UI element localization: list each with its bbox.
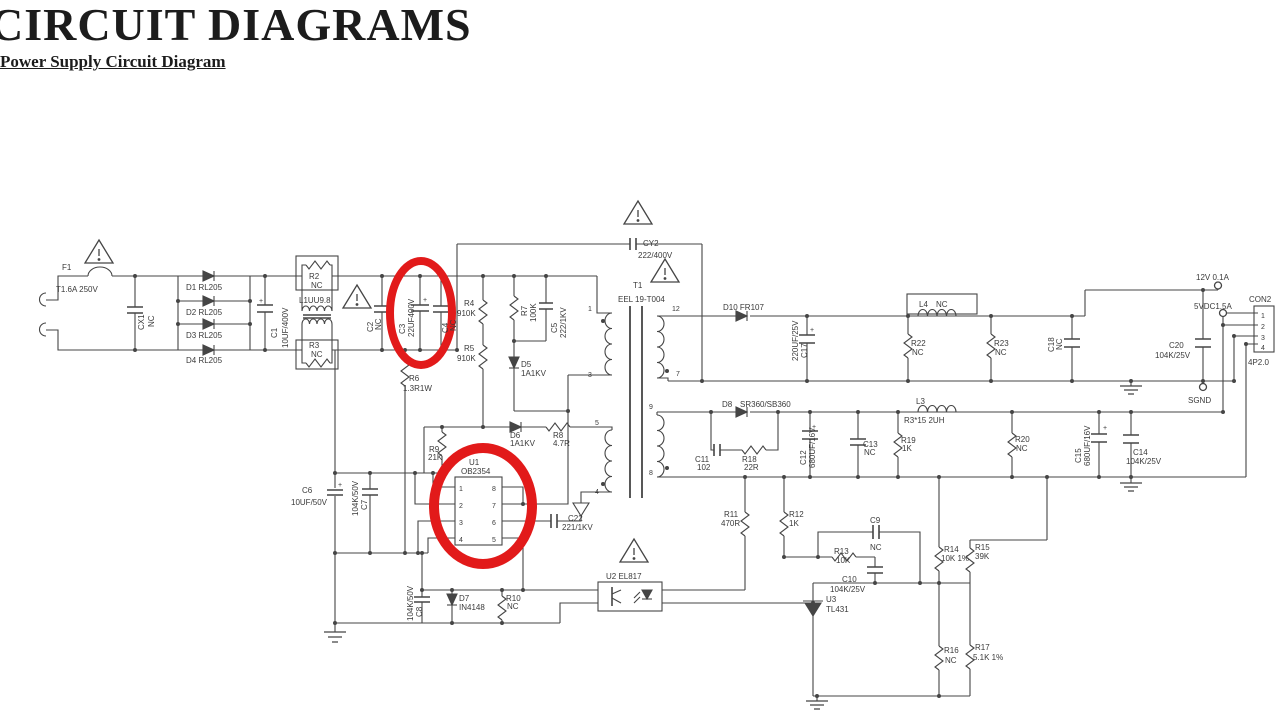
- circuit-wiring: [40, 244, 1275, 701]
- page: CIRCUIT DIAGRAMS Power Supply Circuit Di…: [0, 0, 1280, 720]
- diode-d2: [203, 296, 214, 306]
- component-label: C20: [1169, 341, 1184, 350]
- component-label: 1K: [902, 444, 912, 453]
- component-label: C14: [1133, 448, 1148, 457]
- resistor-r18: [742, 446, 766, 454]
- component-label: R11: [724, 510, 739, 519]
- component-label: R22: [911, 339, 926, 348]
- testpoint-sgnd: [1200, 384, 1207, 391]
- component-label: 100K: [529, 303, 538, 322]
- component-label: 4: [1261, 345, 1265, 352]
- choke-l1-winding-bottom: [302, 319, 332, 324]
- resistor-r8: [546, 423, 570, 431]
- ground-symbol: [1120, 483, 1142, 491]
- component-label: NC: [870, 543, 882, 552]
- component-label: U1: [469, 458, 480, 467]
- diode-d3: [203, 319, 214, 329]
- resistor-r16: [935, 646, 943, 670]
- component-label: 1: [459, 486, 463, 493]
- component-label: 3: [588, 372, 592, 379]
- transformer-secondary-winding-bottom: [657, 415, 664, 477]
- component-label: D2 RL205: [186, 308, 223, 317]
- component-label: 12: [672, 306, 680, 313]
- component-label: C5: [550, 322, 559, 333]
- component-label: NC: [912, 348, 924, 357]
- component-label: 10UF/50V: [291, 498, 328, 507]
- component-label: 2: [459, 503, 463, 510]
- component-label: NC: [936, 300, 948, 309]
- component-label: D1 RL205: [186, 283, 223, 292]
- component-label: R2: [309, 272, 320, 281]
- component-label: 4: [595, 489, 599, 496]
- component-label: SGND: [1188, 396, 1211, 405]
- component-label: 102: [697, 463, 711, 472]
- component-label: NC: [1055, 338, 1064, 350]
- component-label: 4P2.0: [1248, 358, 1269, 367]
- ac-plug-icon: [40, 293, 47, 336]
- component-label: D5: [521, 360, 532, 369]
- resistor-r2: [306, 261, 330, 269]
- diode-d4: [203, 345, 214, 355]
- transformer-core: [630, 306, 642, 498]
- component-label: NC: [1016, 444, 1028, 453]
- component-label: 104K/25V: [830, 585, 866, 594]
- power-supply-schematic: F1T1.6A 250VCX1NCD1 RL205D2 RL205D3 RL20…: [0, 0, 1280, 720]
- page-title: CIRCUIT DIAGRAMS: [0, 0, 890, 51]
- component-label: CY2: [643, 239, 659, 248]
- ground-symbol: [324, 632, 346, 642]
- component-label: C9: [870, 516, 881, 525]
- component-label: T1: [633, 281, 643, 290]
- junction-dots: [133, 274, 1248, 698]
- component-label: U3: [826, 595, 837, 604]
- component-label: 9: [649, 404, 653, 411]
- component-label: R20: [1015, 435, 1030, 444]
- component-label: 680UF/16V: [808, 427, 817, 468]
- page-subtitle: Power Supply Circuit Diagram: [0, 52, 600, 72]
- optocoupler-u2-internals: [612, 587, 652, 606]
- component-label: C17: [800, 343, 809, 358]
- component-label: 4: [459, 537, 463, 544]
- resistor-r10: [498, 596, 506, 620]
- component-label: R5: [464, 344, 475, 353]
- optocoupler-u2-box: [598, 582, 662, 611]
- component-label: 221/1KV: [562, 523, 593, 532]
- diode-d1: [203, 271, 214, 281]
- component-label: R15: [975, 543, 990, 552]
- resistor-r12: [780, 512, 788, 536]
- component-label: 222/400V: [638, 251, 673, 260]
- component-label: R3*15 2UH: [904, 416, 945, 425]
- warning-triangle-icon: [624, 201, 652, 224]
- component-label: C12: [799, 450, 808, 465]
- component-label: +: [259, 298, 263, 305]
- component-label: 8: [492, 486, 496, 493]
- transformer-primary-winding: [605, 313, 612, 375]
- component-label: +: [423, 297, 427, 304]
- component-label: C8: [415, 606, 424, 617]
- component-label: OB2354: [461, 467, 491, 476]
- component-label: L4: [919, 300, 928, 309]
- component-label: TL431: [826, 605, 849, 614]
- component-label: +: [338, 482, 342, 489]
- component-label: L3: [916, 397, 925, 406]
- warning-triangle-icon: [620, 539, 648, 562]
- component-label: 4.7R: [553, 439, 570, 448]
- warning-triangle-icon: [343, 285, 371, 308]
- component-label: 10UF/400V: [281, 307, 290, 348]
- component-label: C10: [842, 575, 857, 584]
- component-label: CON2: [1249, 295, 1272, 304]
- component-label: 104K/25V: [1126, 457, 1162, 466]
- component-label: 5: [595, 420, 599, 427]
- component-label: R12: [789, 510, 804, 519]
- warning-triangle-icon: [85, 240, 113, 263]
- component-label: 8: [649, 470, 653, 477]
- component-label: 39K: [975, 552, 990, 561]
- component-label: 220UF/25V: [791, 320, 800, 361]
- diode-d10: [736, 311, 747, 321]
- component-label: R14: [944, 545, 959, 554]
- component-label: NC: [311, 281, 323, 290]
- component-label: 21K: [428, 453, 443, 462]
- component-label: C3: [398, 323, 407, 334]
- component-label: 104K/25V: [1155, 351, 1191, 360]
- annotations: [85, 201, 1227, 709]
- component-label: R7: [520, 305, 529, 316]
- component-label: NC: [507, 602, 519, 611]
- component-label: 12V 0.1A: [1196, 273, 1230, 282]
- component-label: NC: [311, 350, 323, 359]
- diode-d7: [447, 594, 457, 605]
- component-label: 1: [1261, 313, 1265, 320]
- component-label: NC: [864, 448, 876, 457]
- component-label: 104K/50V: [351, 480, 360, 516]
- highlight-ellipse-2: [434, 448, 532, 564]
- component-label: R3: [309, 341, 320, 350]
- component-label: 3: [1261, 335, 1265, 342]
- capacitor-plates: [127, 238, 1211, 602]
- component-label: T1.6A 250V: [56, 285, 98, 294]
- component-label: F1: [62, 263, 72, 272]
- resistor-r6: [401, 362, 409, 386]
- component-label: 6: [492, 520, 496, 527]
- component-label: 22UF400V: [407, 298, 416, 337]
- component-label: 1K: [789, 519, 799, 528]
- component-label: 1.3R1W: [403, 384, 432, 393]
- component-label: EEL 19-T004: [618, 295, 665, 304]
- choke-l1-winding-top: [302, 306, 332, 311]
- component-label: +: [810, 327, 814, 334]
- component-label: 1A1KV: [510, 439, 536, 448]
- resistor-r5: [479, 345, 487, 369]
- transformer-aux-winding: [605, 430, 612, 492]
- component-label: NC: [945, 656, 957, 665]
- component-label: R6: [409, 374, 420, 383]
- component-label: C7: [360, 499, 369, 510]
- component-label: D4 RL205: [186, 356, 223, 365]
- component-label: R17: [975, 643, 990, 652]
- component-label: 680UF/16V: [1083, 425, 1092, 466]
- testpoint-12v: [1215, 282, 1222, 289]
- component-label: 1: [588, 306, 592, 313]
- component-label: SR360/SB360: [740, 400, 791, 409]
- component-label: 470R: [721, 519, 740, 528]
- component-label: R13: [834, 547, 849, 556]
- component-label: +: [1103, 425, 1107, 432]
- component-label: 5.1K 1%: [973, 653, 1003, 662]
- component-label: C22: [568, 514, 583, 523]
- component-label: 5VDC1.5A: [1194, 302, 1232, 311]
- component-label: 3: [459, 520, 463, 527]
- component-label: L1UU9.8: [299, 296, 331, 305]
- component-label: R16: [944, 646, 959, 655]
- component-label: 7: [492, 503, 496, 510]
- component-label: NC: [995, 348, 1007, 357]
- component-label: R23: [994, 339, 1009, 348]
- component-label: NC: [449, 319, 458, 331]
- component-label: NC: [147, 315, 156, 327]
- component-label: C6: [302, 486, 313, 495]
- component-label: C1: [270, 327, 279, 338]
- component-label: 222/1KV: [559, 307, 568, 338]
- component-label: 10K: [836, 556, 851, 565]
- ground-symbol: [806, 701, 828, 709]
- component-label: IN4148: [459, 603, 485, 612]
- component-label: 910K: [457, 309, 476, 318]
- component-label: D3 RL205: [186, 331, 223, 340]
- component-label: 910K: [457, 354, 476, 363]
- component-label: 104K/50V: [406, 585, 415, 621]
- inductor-l3: [918, 406, 956, 413]
- resistor-r4: [479, 300, 487, 324]
- component-label: 22R: [744, 463, 759, 472]
- component-label: NC: [374, 318, 383, 330]
- component-label: D10 FR107: [723, 303, 764, 312]
- component-label: R4: [464, 299, 475, 308]
- component-label: C15: [1074, 448, 1083, 463]
- diode-d5: [509, 357, 519, 368]
- component-label: 7: [676, 371, 680, 378]
- resistor-r3: [306, 359, 330, 367]
- warning-triangle-icon: [651, 259, 679, 282]
- component-label: 5: [492, 537, 496, 544]
- resistor-r11: [741, 512, 749, 536]
- component-label: 1A1KV: [521, 369, 547, 378]
- component-label: U2 EL817: [606, 572, 642, 581]
- component-label: 2: [1261, 324, 1265, 331]
- component-label: 10K 1%: [941, 554, 969, 563]
- transformer-secondary-winding-top: [657, 316, 664, 378]
- component-label: CX1: [137, 314, 146, 330]
- component-label: D7: [459, 594, 470, 603]
- component-label: D8: [722, 400, 733, 409]
- resistor-r7: [510, 296, 518, 320]
- ground-symbol: [1120, 386, 1142, 394]
- inductor-l4: [918, 310, 956, 317]
